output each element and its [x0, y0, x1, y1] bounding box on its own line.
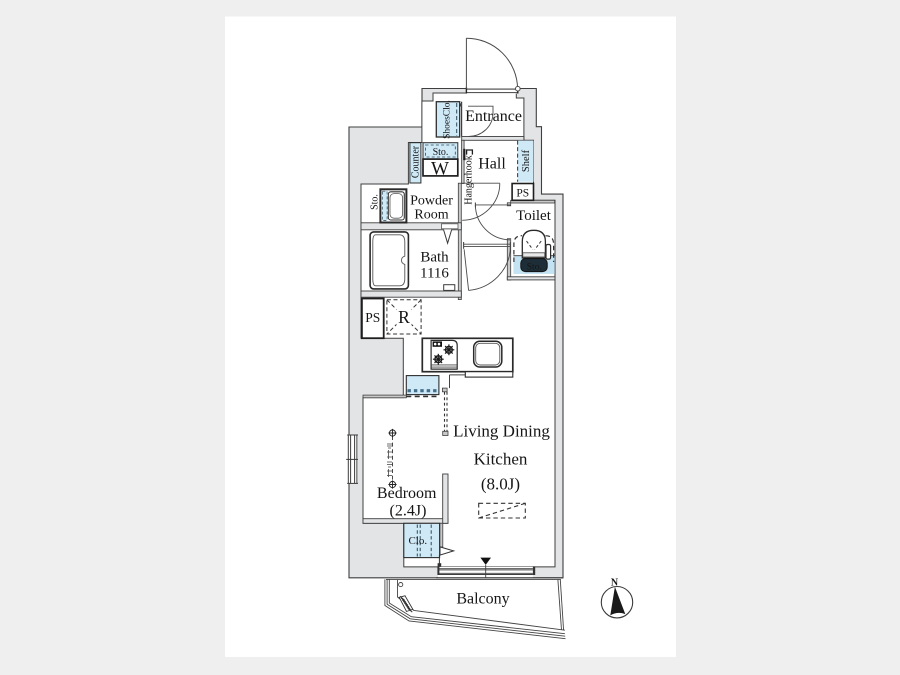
svg-text:1116: 1116: [420, 266, 449, 282]
svg-text:R: R: [398, 307, 410, 327]
svg-text:Living Dining: Living Dining: [453, 421, 550, 440]
svg-text:Hangerhook: Hangerhook: [464, 155, 475, 204]
svg-text:Counter: Counter: [411, 145, 422, 178]
svg-text:(2.4J): (2.4J): [390, 502, 427, 519]
svg-text:Entrance: Entrance: [465, 108, 522, 125]
svg-text:Bedroom: Bedroom: [377, 485, 437, 502]
svg-text:Sto.: Sto.: [433, 147, 449, 158]
svg-text:PS: PS: [516, 187, 529, 199]
svg-text:Balcony: Balcony: [456, 590, 509, 607]
svg-text:(8.0J): (8.0J): [481, 474, 520, 493]
svg-text:Shelf: Shelf: [521, 149, 532, 172]
svg-text:W: W: [431, 158, 449, 179]
svg-text:Sto.: Sto.: [527, 262, 542, 272]
svg-text:Powder: Powder: [410, 193, 453, 208]
svg-text:ShoesClo.: ShoesClo.: [443, 100, 453, 139]
svg-text:Room: Room: [414, 207, 448, 222]
svg-text:Clo.: Clo.: [408, 535, 427, 547]
svg-text:Sto.: Sto.: [370, 194, 381, 210]
svg-text:Bath: Bath: [420, 250, 449, 266]
svg-text:PS: PS: [365, 310, 380, 325]
svg-text:Toilet: Toilet: [516, 208, 552, 224]
svg-text:Kitchen: Kitchen: [474, 449, 528, 468]
svg-text:N: N: [611, 578, 619, 589]
svg-text:Hall: Hall: [478, 156, 506, 173]
